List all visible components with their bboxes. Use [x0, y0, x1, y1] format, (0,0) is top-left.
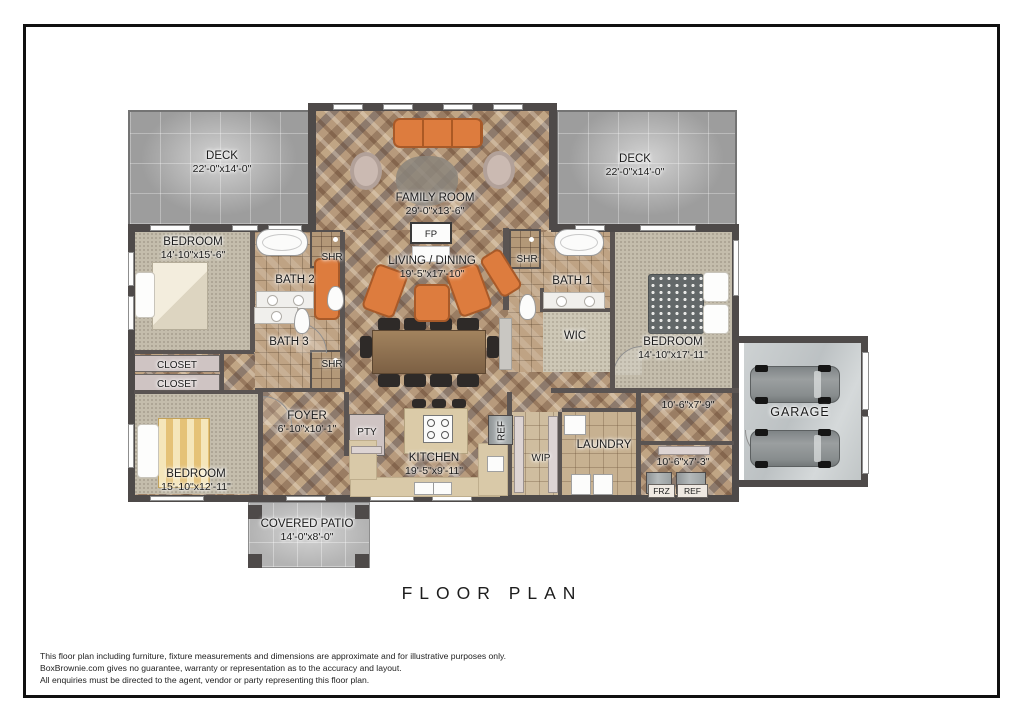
window [733, 240, 739, 296]
freezer-label: FRZ [648, 484, 675, 498]
window [493, 104, 523, 110]
wall [562, 408, 638, 412]
window [232, 225, 258, 231]
car [750, 366, 840, 403]
car [750, 430, 840, 467]
dining-chair [404, 374, 426, 387]
garage-door [862, 416, 869, 474]
kitchen-fridge-label: REF [494, 421, 509, 441]
bathtub-bath1 [554, 229, 604, 256]
garage-wall [737, 336, 868, 343]
wall [134, 350, 254, 354]
flex-room-top-label: 10'-6"x7'-9" [662, 397, 715, 412]
window [150, 496, 204, 501]
dining-chair [430, 374, 452, 387]
second-fridge-label: REF [677, 484, 708, 498]
washer [571, 474, 591, 495]
kitchen-label: KITCHEN19'-5"x9'-11" [405, 452, 463, 478]
bathtub-bath2 [256, 229, 308, 256]
bed-pillow [703, 304, 729, 334]
dining-chair [360, 336, 372, 358]
window [128, 424, 134, 468]
living-chair [414, 284, 450, 322]
patio-post [355, 505, 369, 519]
living-dining-label: LIVING / DINING19'-5"x17'-10" [388, 255, 476, 281]
bed-right [648, 274, 704, 334]
pantry-shelf [351, 446, 382, 454]
dryer [593, 474, 613, 495]
disclaimer-text: This floor plan including furniture, fix… [40, 650, 506, 687]
wall [258, 392, 263, 495]
wip-shelf [514, 416, 524, 493]
window [383, 104, 413, 110]
toilet-bath3 [294, 308, 310, 334]
dining-table [372, 330, 486, 374]
bed-top-left [152, 262, 208, 330]
bedroom-bottom-left-label: BEDROOM15'-10"x12'-11" [161, 468, 231, 494]
window [443, 104, 473, 110]
pantry-label: PTY [357, 424, 376, 439]
patio-post [248, 505, 262, 519]
wall [551, 388, 739, 393]
bar-stool [452, 399, 466, 408]
closet2-label: CLOSET [157, 376, 197, 391]
wall [641, 441, 734, 445]
window [128, 296, 134, 330]
kitchen-prep-sink [487, 456, 504, 472]
fireplace-label: FP [425, 226, 437, 241]
wall [549, 103, 557, 230]
disclaimer-line-3: All enquiries must be directed to the ag… [40, 674, 506, 686]
bath3-label: BATH 3 [269, 334, 308, 349]
shower-head-icon [333, 237, 338, 242]
shr-bath1-label: SHR [516, 251, 537, 266]
family-sofa [393, 118, 483, 148]
disclaimer-line-2: BoxBrownie.com gives no guarantee, warra… [40, 662, 506, 674]
wall [610, 232, 615, 388]
stove-icon [423, 415, 453, 443]
laundry-label: LAUNDRY [577, 437, 632, 452]
bath1-label: BATH 1 [552, 273, 591, 288]
bed-pillow [137, 424, 159, 478]
armchair-left [350, 152, 382, 190]
garage-label: GARAGE [770, 405, 830, 419]
flex-room-bottom-label: 10'-6"x7'-3" [657, 454, 710, 469]
wall [220, 352, 224, 392]
wic-label: WIC [564, 328, 586, 343]
window [150, 225, 190, 231]
toilet-bath1 [519, 294, 536, 320]
bedroom-top-left-label: BEDROOM14'-10"x15'-6" [161, 236, 226, 262]
armchair-right [483, 151, 515, 189]
wall [558, 412, 562, 495]
shr-bath3-label: SHR [321, 356, 342, 371]
shower-head-icon [529, 237, 534, 242]
wip-label: WIP [532, 450, 551, 465]
toilet-bath2 [327, 286, 344, 311]
deck-left-label: DECK22'-0"x14'-0" [193, 150, 252, 176]
bed-pillow [135, 272, 155, 318]
wall [255, 388, 345, 392]
garage-wall [737, 480, 868, 487]
vanity-bath1 [543, 292, 605, 309]
closet1-label: CLOSET [157, 357, 197, 372]
covered-patio-label: COVERED PATIO14'-0"x8'-0" [261, 518, 354, 544]
garage-door [862, 352, 869, 410]
dining-chair [487, 336, 499, 358]
window [333, 104, 363, 110]
vanity-bath3 [254, 307, 298, 324]
wall [308, 103, 316, 230]
bath2-label: BATH 2 [275, 272, 314, 287]
bed-pillow [703, 272, 729, 302]
wall [250, 232, 255, 352]
page-title: FLOOR PLAN [402, 583, 583, 604]
window [640, 225, 696, 231]
shr-bath2-label: SHR [321, 249, 342, 264]
console-table [499, 318, 512, 370]
laundry-tub [564, 415, 586, 435]
deck-right-label: DECK22'-0"x14'-0" [606, 153, 665, 179]
bar-stool [412, 399, 426, 408]
foyer-label: FOYER6'-10"x10'-1" [278, 410, 337, 436]
kitchen-double-sink [414, 482, 452, 495]
window [128, 252, 134, 286]
bar-stool [432, 399, 446, 408]
dining-chair [457, 374, 479, 387]
patio-door [286, 496, 326, 501]
dining-chair [378, 374, 400, 387]
patio-post [355, 554, 369, 568]
disclaimer-line-1: This floor plan including furniture, fix… [40, 650, 506, 662]
family-room-label: FAMILY ROOM29'-0"x13'-6" [396, 192, 475, 218]
bedroom-right-label: BEDROOM14'-10"x17'-11" [638, 336, 708, 362]
patio-post [248, 554, 262, 568]
